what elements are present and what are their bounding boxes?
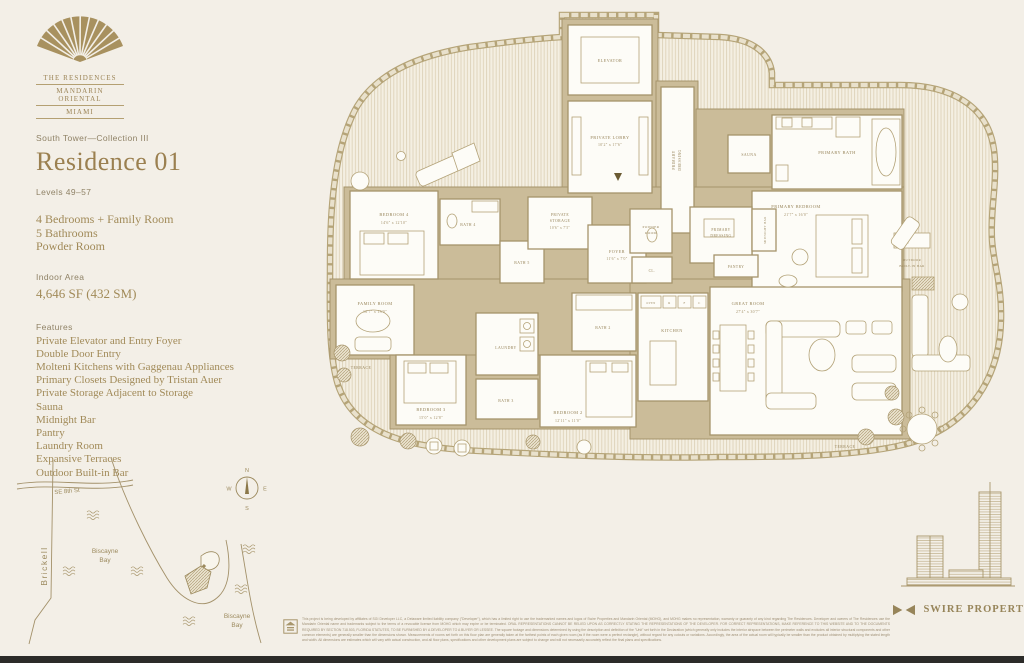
equal-housing-icon: [283, 619, 298, 634]
feature-item: Pantry: [36, 427, 276, 440]
district-label: Brickell: [39, 546, 49, 585]
dims-bedroom2: 12'11" x 11'0": [555, 419, 581, 423]
map-island-building: [185, 552, 219, 594]
label-powder-2: ROOM: [645, 231, 657, 235]
label-primary-bedroom: PRIMARY BEDROOM: [771, 204, 820, 209]
compass-w: W: [226, 487, 232, 493]
map-waves: [63, 511, 255, 626]
bay-label-upper-2: Bay: [99, 557, 111, 564]
label-bath3: BATH 3: [498, 399, 513, 403]
label-fridge-r: R: [668, 301, 670, 305]
label-kitchen: KITCHEN: [661, 328, 683, 333]
developer-block: SWIRE PROPERTIES: [893, 482, 1021, 619]
brand-line-2: MANDARIN ORIENTAL: [36, 84, 124, 105]
label-closet: CL.: [649, 269, 656, 273]
label-bedroom4: BEDROOM 4: [379, 212, 409, 217]
feature-item: Midnight Bar: [36, 414, 276, 427]
compass-s: S: [245, 506, 249, 512]
feature-item: Primary Closets Designed by Tristan Auer: [36, 374, 276, 387]
label-powder-1: POWDER: [642, 225, 659, 229]
area-value: 4,646 SF (432 SM): [36, 286, 276, 302]
label-bedroom3: BEDROOM 3: [416, 407, 446, 412]
label-outdoor-bar-2: BUILT-IN BAR: [899, 264, 925, 268]
compass-e: E: [263, 487, 267, 493]
towers-illustration: [893, 482, 1021, 590]
bay-label-upper-1: Biscayne: [92, 548, 119, 555]
legal-disclaimer: This project is being developed by affil…: [302, 617, 890, 643]
summary-bathrooms: 5 Bathrooms: [36, 227, 276, 241]
label-bath4: BATH 4: [460, 223, 475, 227]
page-title: Residence 01: [36, 147, 276, 177]
label-family-room: FAMILY ROOM: [357, 301, 392, 306]
label-elevator: ELEVATOR: [598, 58, 623, 63]
location-map: SE 8th St Brickell Biscayne Bay Biscayne…: [15, 448, 293, 656]
summary-bedrooms: 4 Bedrooms + Family Room: [36, 213, 276, 227]
label-bath2: BATH 2: [595, 326, 610, 330]
label-primary-dressing-1: PRIMARY: [711, 228, 730, 232]
dims-foyer: 11'6" x 7'0": [606, 257, 627, 261]
dims-primary-bedroom: 21'7" x 16'0": [784, 213, 808, 217]
label-fridge-f: F: [683, 301, 685, 305]
summary-powder: Powder Room: [36, 240, 276, 254]
brand-line-1: THE RESIDENCES: [36, 72, 124, 84]
area-label: Indoor Area: [36, 272, 276, 282]
label-primary-dressing-2: DRESSING: [710, 234, 731, 238]
label-terrace-left: TERRACE: [351, 366, 372, 370]
feature-item: Double Door Entry: [36, 348, 276, 361]
compass-n: N: [245, 468, 249, 474]
feature-item: Private Storage Adjacent to Storage: [36, 387, 276, 400]
label-outdoor-bar-1: OUTDOOR: [903, 258, 922, 262]
brand-line-3: MIAMI: [36, 105, 124, 119]
brochure-page: THE RESIDENCES MANDARIN ORIENTAL MIAMI S…: [0, 0, 1024, 663]
developer-name: SWIRE PROPERTIES: [923, 604, 1024, 615]
street-label: SE 8th St: [54, 488, 80, 496]
bay-label-lower-1: Biscayne: [224, 613, 251, 620]
label-cooler-c: C: [698, 301, 700, 305]
dims-storage: 10'6" x 7'5": [550, 226, 571, 230]
compass-icon: N W E S: [226, 468, 267, 512]
label-oven: OVEN: [646, 302, 655, 305]
label-bath5: BATH 5: [514, 261, 529, 265]
feature-item: Private Elevator and Entry Foyer: [36, 335, 276, 348]
bottom-bar: [0, 656, 1024, 663]
label-dressing-hall-2: DRESSING: [678, 149, 682, 170]
label-foyer: FOYER: [609, 249, 625, 254]
dims-bedroom3: 15'0" x 12'8": [419, 416, 443, 420]
label-primary-bath: PRIMARY BATH: [818, 150, 856, 155]
label-storage-2: STORAGE: [550, 219, 571, 223]
dims-bedroom4: 14'6" x 12'10": [381, 221, 407, 225]
label-storage-1: PRIVATE: [551, 213, 570, 217]
collection-label: South Tower—Collection III: [36, 133, 276, 143]
label-private-lobby: PRIVATE LOBBY: [590, 135, 630, 140]
label-sauna: SAUNA: [741, 153, 756, 157]
swire-bowtie-icon: [893, 604, 915, 616]
sidebar: THE RESIDENCES MANDARIN ORIENTAL MIAMI S…: [36, 12, 276, 480]
feature-item: Sauna: [36, 401, 276, 414]
label-pantry: PANTRY: [728, 265, 745, 269]
label-great-room: GREAT ROOM: [732, 301, 765, 306]
levels-label: Levels 49–57: [36, 187, 276, 197]
summary-list: 4 Bedrooms + Family Room 5 Bathrooms Pow…: [36, 213, 276, 254]
bay-label-lower-2: Bay: [231, 622, 243, 629]
brand-block: THE RESIDENCES MANDARIN ORIENTAL MIAMI: [36, 12, 124, 119]
features-title: Features: [36, 322, 276, 332]
feature-item: Molteni Kitchens with Gaggenau Appliance…: [36, 361, 276, 374]
label-bedroom2: BEDROOM 2: [553, 410, 582, 415]
label-dressing-hall-1: PRIMARY: [672, 150, 676, 169]
floor-plan: ELEVATOR PRIVATE LOBBY 10'2" x 17'6" PRI…: [300, 5, 1015, 480]
label-midnight-bar: MIDNIGHT BAR: [763, 216, 767, 243]
dims-family-room: 16'7" x 13'0": [363, 310, 387, 314]
label-laundry: LAUNDRY: [495, 346, 517, 350]
label-terrace-right: TERRACE: [835, 445, 856, 449]
dims-private-lobby: 10'2" x 17'6": [598, 143, 622, 147]
dims-great-room: 27'4" x 30'7": [736, 310, 760, 314]
fan-logo-icon: [37, 12, 123, 64]
